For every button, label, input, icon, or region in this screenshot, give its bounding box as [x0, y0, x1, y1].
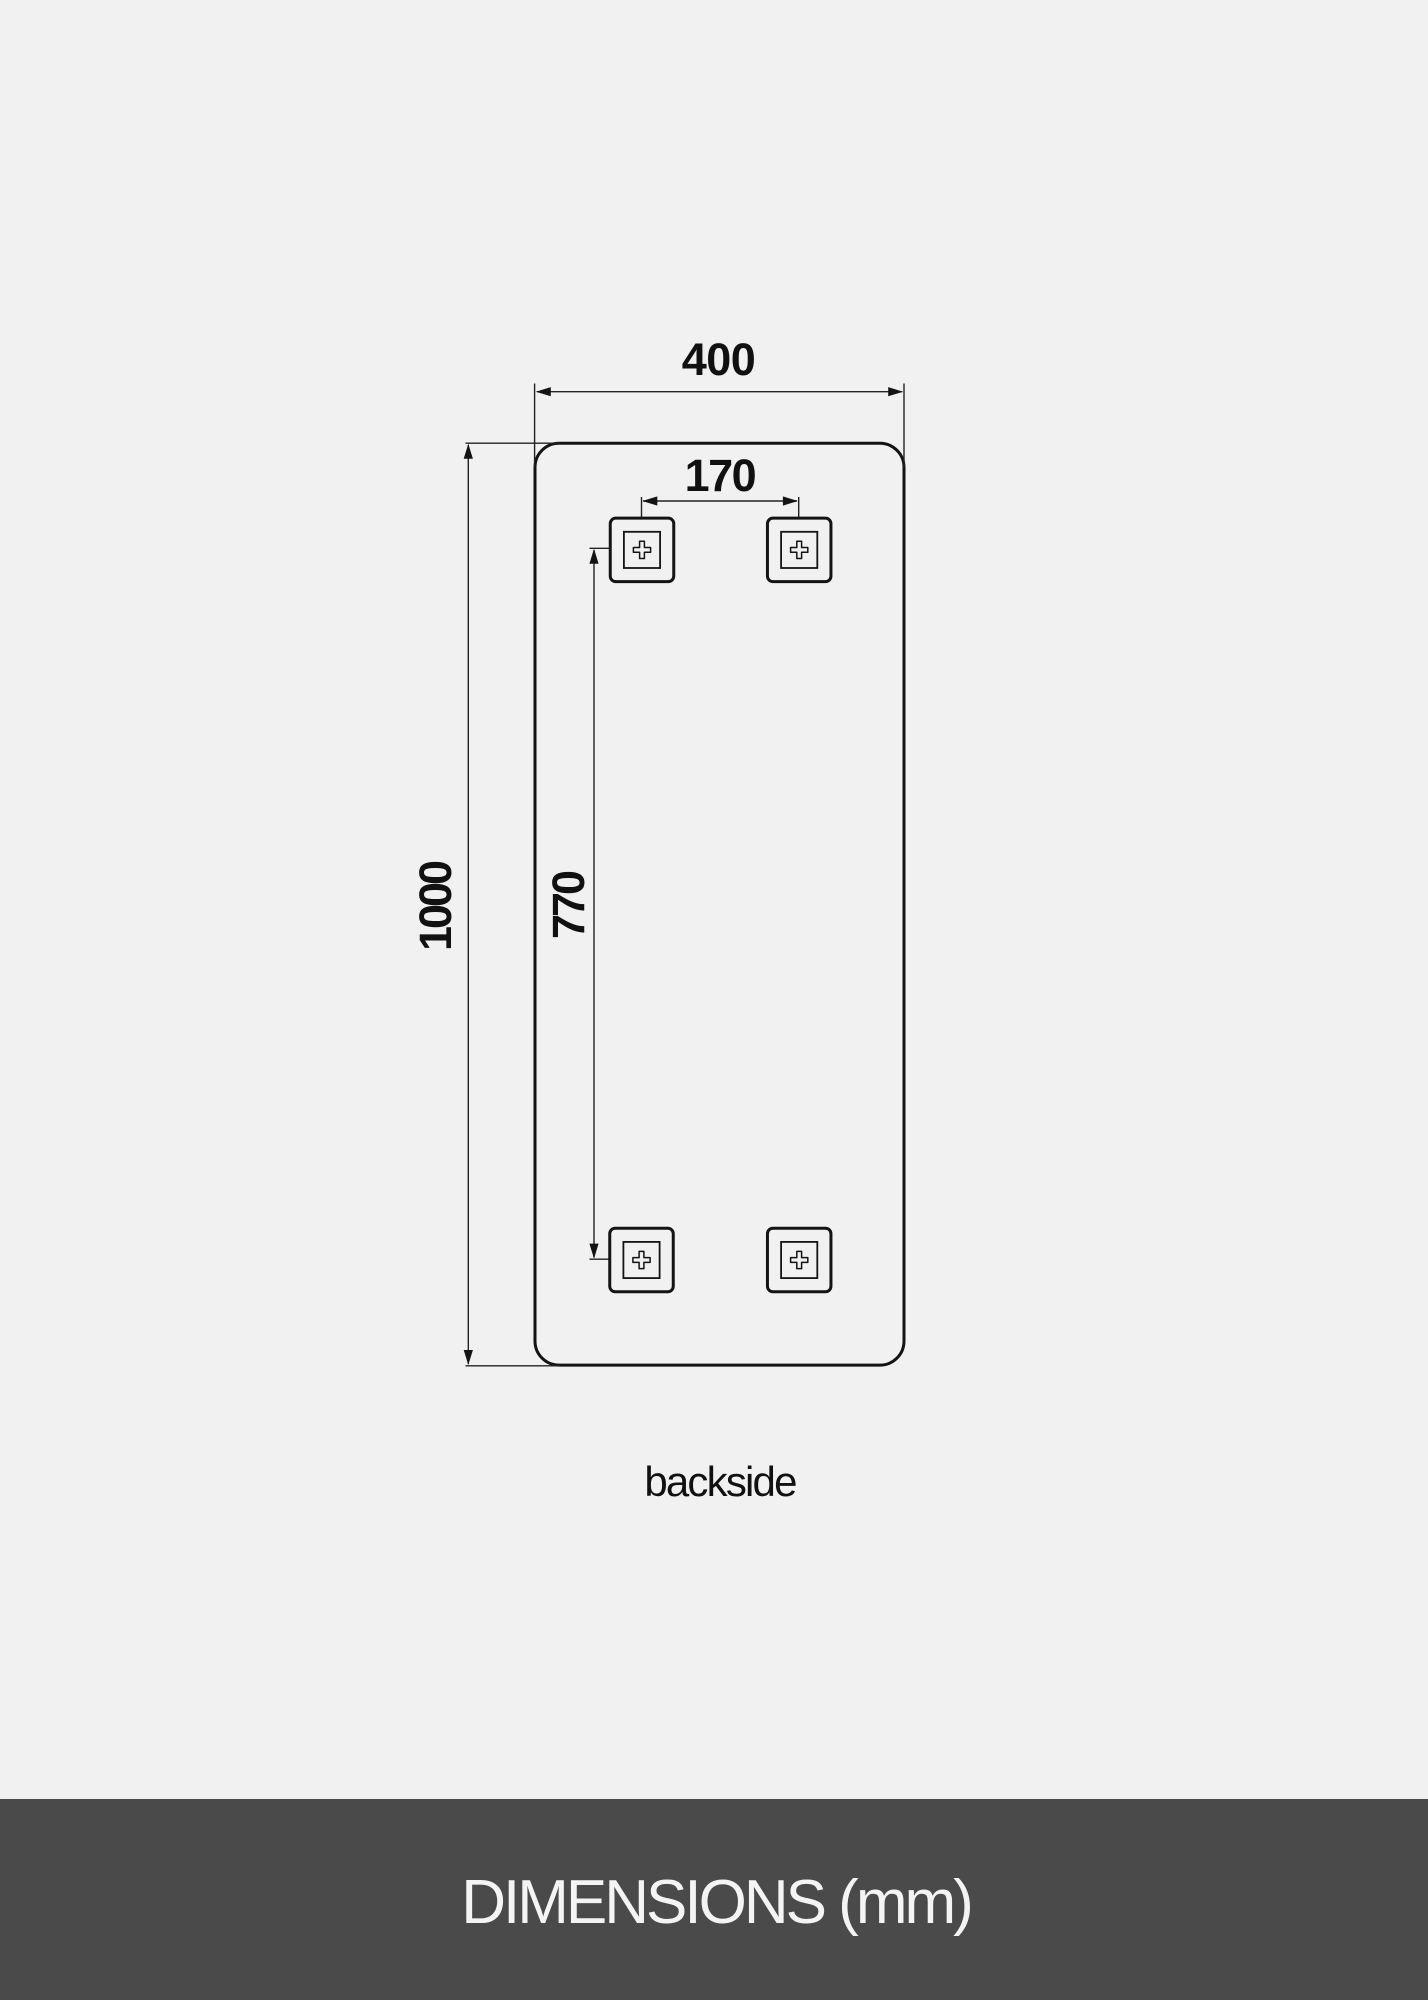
- svg-text:400: 400: [682, 334, 756, 385]
- svg-text:DIMENSIONS (mm): DIMENSIONS (mm): [461, 1868, 971, 1937]
- svg-text:1000: 1000: [410, 861, 461, 951]
- svg-text:770: 770: [543, 871, 594, 939]
- svg-text:backside: backside: [644, 1458, 796, 1505]
- svg-text:170: 170: [685, 450, 756, 501]
